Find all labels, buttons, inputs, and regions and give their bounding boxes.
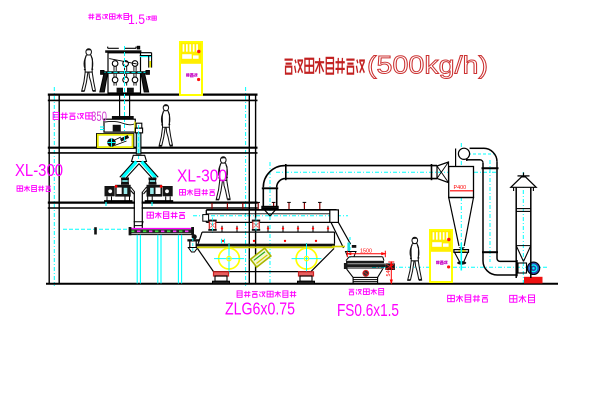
svg-text:350: 350 <box>91 108 107 124</box>
svg-text:540: 540 <box>386 268 392 277</box>
svg-text:FS0.6x1.5: FS0.6x1.5 <box>337 300 399 320</box>
svg-text:XL-300: XL-300 <box>15 160 63 180</box>
svg-text:1.5: 1.5 <box>128 11 145 27</box>
svg-text:1500: 1500 <box>360 249 372 255</box>
svg-text:XL-300: XL-300 <box>177 165 227 185</box>
svg-text:P400: P400 <box>454 185 467 191</box>
svg-text:(500kg/h): (500kg/h) <box>367 52 488 80</box>
svg-text:ZLG6x0.75: ZLG6x0.75 <box>225 298 295 318</box>
